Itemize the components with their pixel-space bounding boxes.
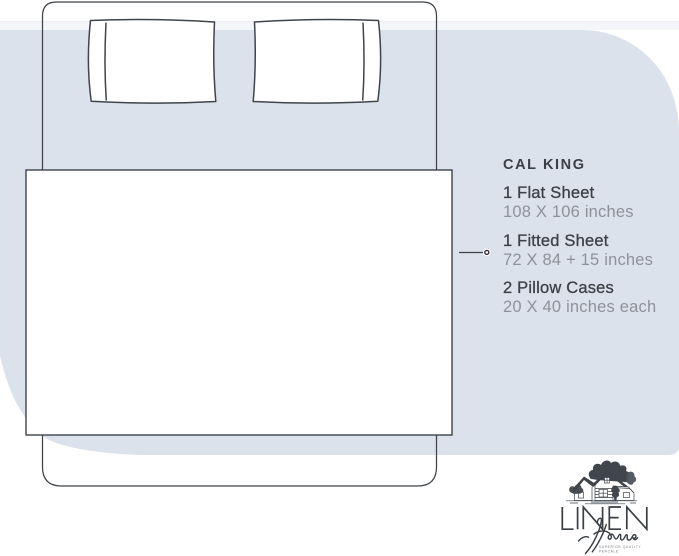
svg-text:72 X 84 + 15 inches: 72 X 84 + 15 inches (503, 251, 653, 269)
svg-text:108 X 106 inches: 108 X 106 inches (503, 203, 634, 221)
svg-text:SUPERIOR QUALITY: SUPERIOR QUALITY (599, 545, 642, 549)
svg-text:CAL KING: CAL KING (503, 157, 586, 173)
svg-text:PERCALE: PERCALE (599, 550, 619, 554)
svg-text:20 X 40 inches each: 20 X 40 inches each (503, 298, 656, 316)
svg-text:2 Pillow Cases: 2 Pillow Cases (503, 279, 614, 297)
svg-text:1 Fitted Sheet: 1 Fitted Sheet (503, 232, 609, 250)
svg-text:1 Flat Sheet: 1 Flat Sheet (503, 184, 595, 202)
